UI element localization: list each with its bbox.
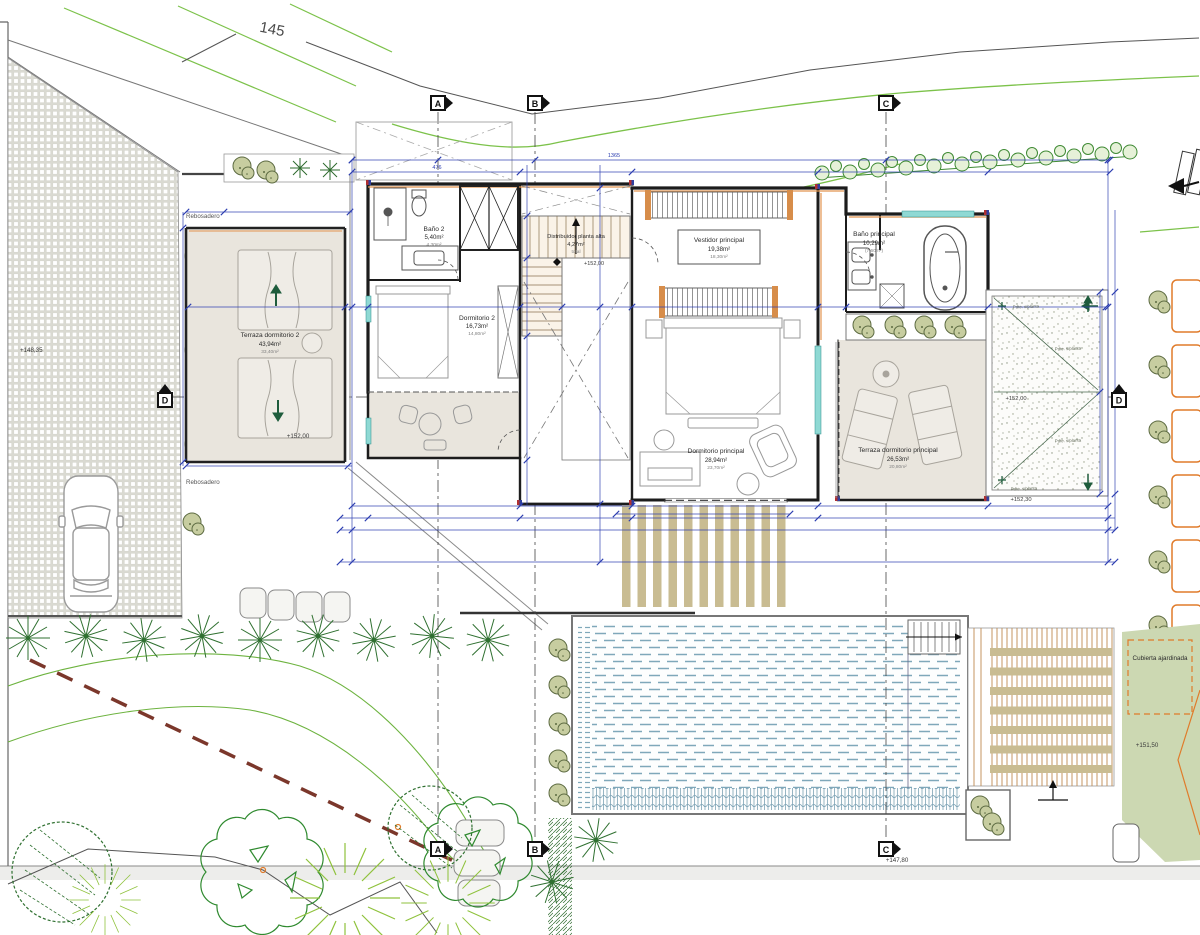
bush-icon [549,750,570,772]
ramp-edge [348,462,548,630]
svg-text:+152,00: +152,00 [584,261,604,267]
north-arrow-icon [1168,149,1200,195]
bush-icon [1149,421,1170,443]
svg-text:Distribuidor planta alta: Distribuidor planta alta [547,234,605,240]
section-marker-b-top: B [528,96,550,110]
svg-text:Pdte. s/planta: Pdte. s/planta [1055,438,1082,444]
svg-text:14,80m²: 14,80m² [468,331,486,337]
floor-plan-drawing: 145 [0,0,1200,935]
garden-elevation: +147,80 [886,857,909,864]
bush-icon [1149,291,1170,313]
svg-text:28,94m²: 28,94m² [705,457,727,464]
pool [460,613,968,814]
ray-tree-icon [290,843,400,935]
bush-icon [1149,486,1170,508]
bush-icon [1149,551,1170,573]
svg-text:23,70m²: 23,70m² [707,465,725,471]
svg-text:Baño 2: Baño 2 [424,226,445,233]
section-marker-d-right: D [1112,384,1126,407]
section-marker-b-bottom: B [528,842,550,856]
svg-text:+152,30: +152,30 [1010,497,1031,503]
pergola-bottom-right [966,628,1114,840]
garden-steps [240,588,504,906]
svg-text:18,30m²: 18,30m² [710,254,728,260]
bed-2 [376,286,450,378]
sheet-border [0,22,8,866]
bush-icon [1149,356,1170,378]
svg-text:A: A [435,845,442,855]
svg-text:Pdte. s/planta: Pdte. s/planta [1055,346,1082,352]
dimension-value-left: 476 [432,165,441,171]
scribble-tree [12,786,472,925]
green-roof [986,290,1108,496]
section-marker-c-bottom: C [879,842,901,856]
bush-icon [549,676,570,698]
svg-text:20,80m²: 20,80m² [889,464,907,470]
lower-roof-outline [356,122,512,180]
section-marker-c-top: C [879,96,901,110]
svg-text:10,29m²: 10,29m² [863,240,885,247]
palm-row [6,608,621,908]
planting-strip [548,818,572,935]
svg-text:Baño principal: Baño principal [853,231,895,238]
svg-text:D: D [1116,396,1123,406]
svg-text:4,27m²: 4,27m² [567,242,585,248]
svg-text:43,94m²: 43,94m² [259,341,281,348]
section-marker-a-bottom: A [431,842,453,856]
bush-icon [183,513,204,535]
green-roof-elevation: +151,50 [1136,742,1159,749]
svg-text:5,40m²: 5,40m² [425,234,444,241]
master-bed [646,318,800,428]
floor-plan-svg: 145 [0,0,1200,935]
svg-text:33,40m²: 33,40m² [261,349,279,355]
svg-text:total: total [571,249,580,255]
contour-elevation-label: 145 [258,19,286,40]
svg-text:A: A [435,99,442,109]
bottom-border-bar [0,866,1200,880]
master-terrace-planter [846,314,988,340]
svg-text:(7,60m²): (7,60m²) [865,248,884,254]
svg-text:+152,00: +152,00 [1005,396,1026,402]
bush-icon [549,713,570,735]
svg-text:Dormitorio 2: Dormitorio 2 [459,315,495,322]
svg-text:Dormitorio principal: Dormitorio principal [688,448,745,455]
planter-boxes-right [1172,280,1200,657]
pool-water [592,624,960,788]
dimension-value-total: 1365 [608,153,620,159]
svg-text:B: B [532,845,539,855]
svg-text:+152,00: +152,00 [287,433,310,440]
svg-text:19,38m²: 19,38m² [708,246,730,253]
ray-tree-icon [69,864,141,935]
svg-text:Terraza dormitorio 2: Terraza dormitorio 2 [241,332,300,339]
bush-icon [549,784,570,806]
svg-text:C: C [883,99,890,109]
svg-text:B: B [532,99,539,109]
overflow-label-1: Rebosadero [186,213,220,220]
svg-text:C: C [883,845,890,855]
svg-text:4,30m²: 4,30m² [427,242,442,248]
svg-text:D: D [162,396,169,406]
car [59,476,123,612]
green-roof-garden-label: Cubierta ajardinada [1133,655,1188,662]
svg-text:26,53m²: 26,53m² [887,456,909,463]
svg-text:Vestidor principal: Vestidor principal [694,237,745,244]
pergola-beams [622,505,786,607]
planter-strip-top [224,154,354,183]
driveway-elevation: +148,35 [20,347,43,354]
svg-text:Pdte. s/planta: Pdte. s/planta [1013,304,1040,310]
svg-text:16,73m²: 16,73m² [466,323,488,330]
bush-icon [549,639,570,661]
svg-text:Terraza dormitorio principal: Terraza dormitorio principal [858,447,938,454]
section-marker-a-top: A [431,96,453,110]
pool-planter [966,790,1010,840]
overflow-label-2: Rebosadero [186,479,220,486]
porch-floor [368,392,520,458]
hedge [815,143,1137,181]
svg-text:Pdte. s/planta: Pdte. s/planta [1011,486,1038,492]
